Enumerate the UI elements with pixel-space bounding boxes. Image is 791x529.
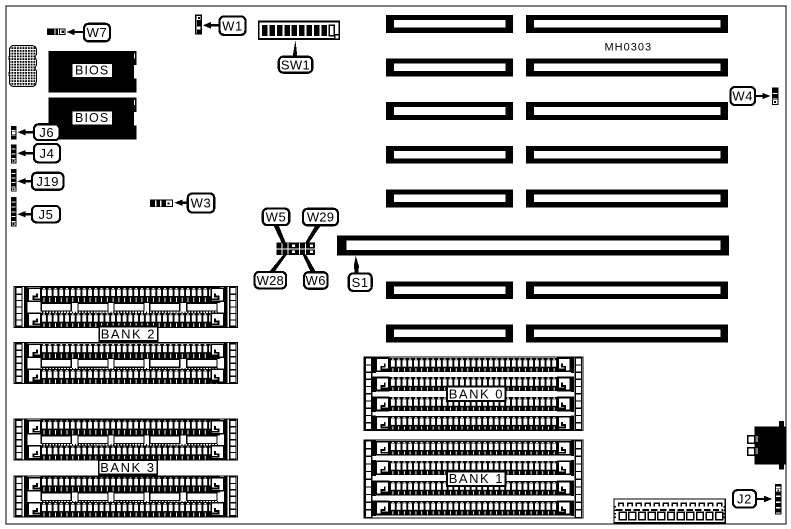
svg-text:W29: W29 <box>307 210 334 225</box>
svg-text:W28: W28 <box>257 273 284 288</box>
svg-text:J4: J4 <box>40 146 55 161</box>
svg-text:BIOS: BIOS <box>75 64 109 78</box>
svg-text:W6: W6 <box>305 273 326 288</box>
svg-text:SW1: SW1 <box>281 57 310 72</box>
svg-text:W1: W1 <box>222 18 243 33</box>
svg-text:W3: W3 <box>191 196 212 211</box>
svg-text:MH0303: MH0303 <box>605 42 653 54</box>
svg-text:BANK 0: BANK 0 <box>449 386 504 401</box>
svg-text:J6: J6 <box>39 125 54 140</box>
svg-text:BIOS: BIOS <box>75 111 109 125</box>
svg-text:BANK 2: BANK 2 <box>101 326 156 341</box>
svg-text:S1: S1 <box>352 275 369 290</box>
svg-text:J19: J19 <box>36 174 59 189</box>
svg-text:W5: W5 <box>266 209 287 224</box>
svg-text:J2: J2 <box>737 491 752 506</box>
svg-text:J5: J5 <box>39 207 54 222</box>
svg-text:W4: W4 <box>732 89 753 104</box>
svg-text:BANK 1: BANK 1 <box>449 471 504 486</box>
svg-text:BANK 3: BANK 3 <box>100 460 155 475</box>
svg-text:W7: W7 <box>87 25 108 40</box>
